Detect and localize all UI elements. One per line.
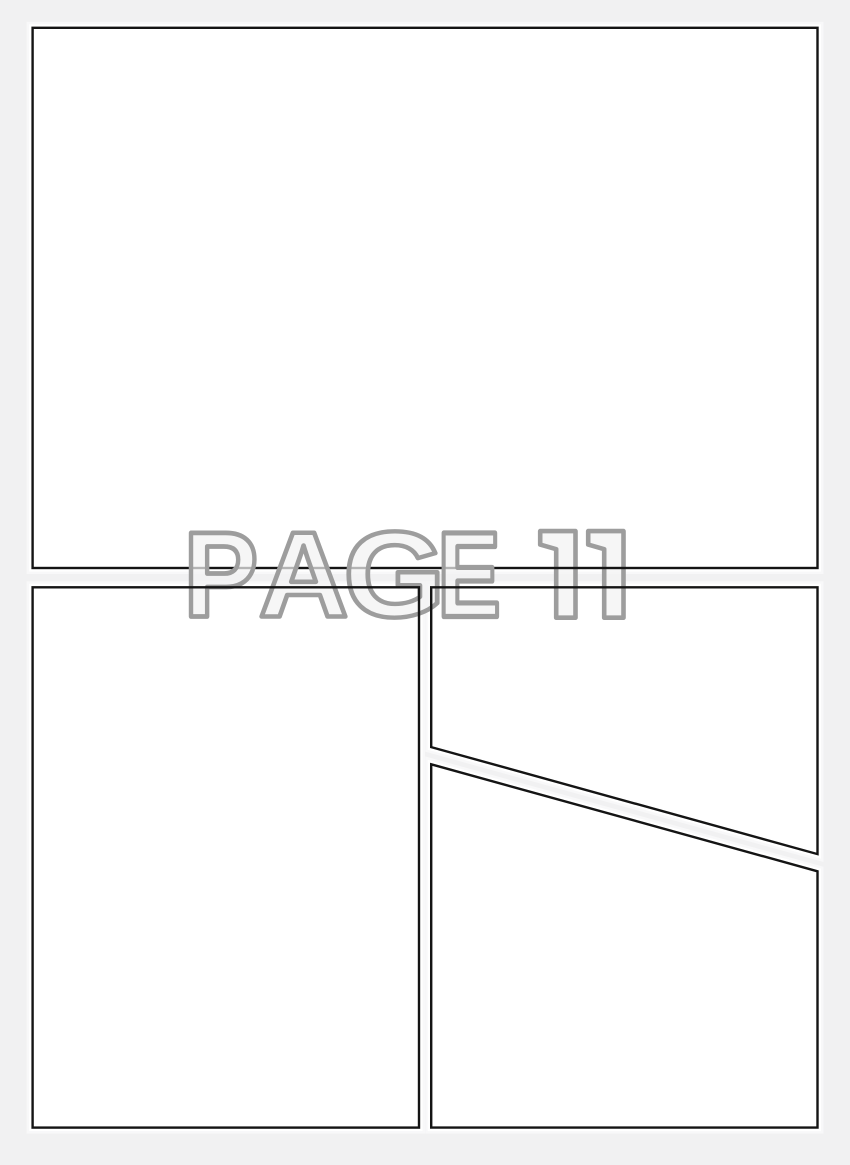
svg-text:P: P [184,506,259,642]
svg-text:A: A [259,507,349,643]
svg-text:E: E [437,507,501,643]
